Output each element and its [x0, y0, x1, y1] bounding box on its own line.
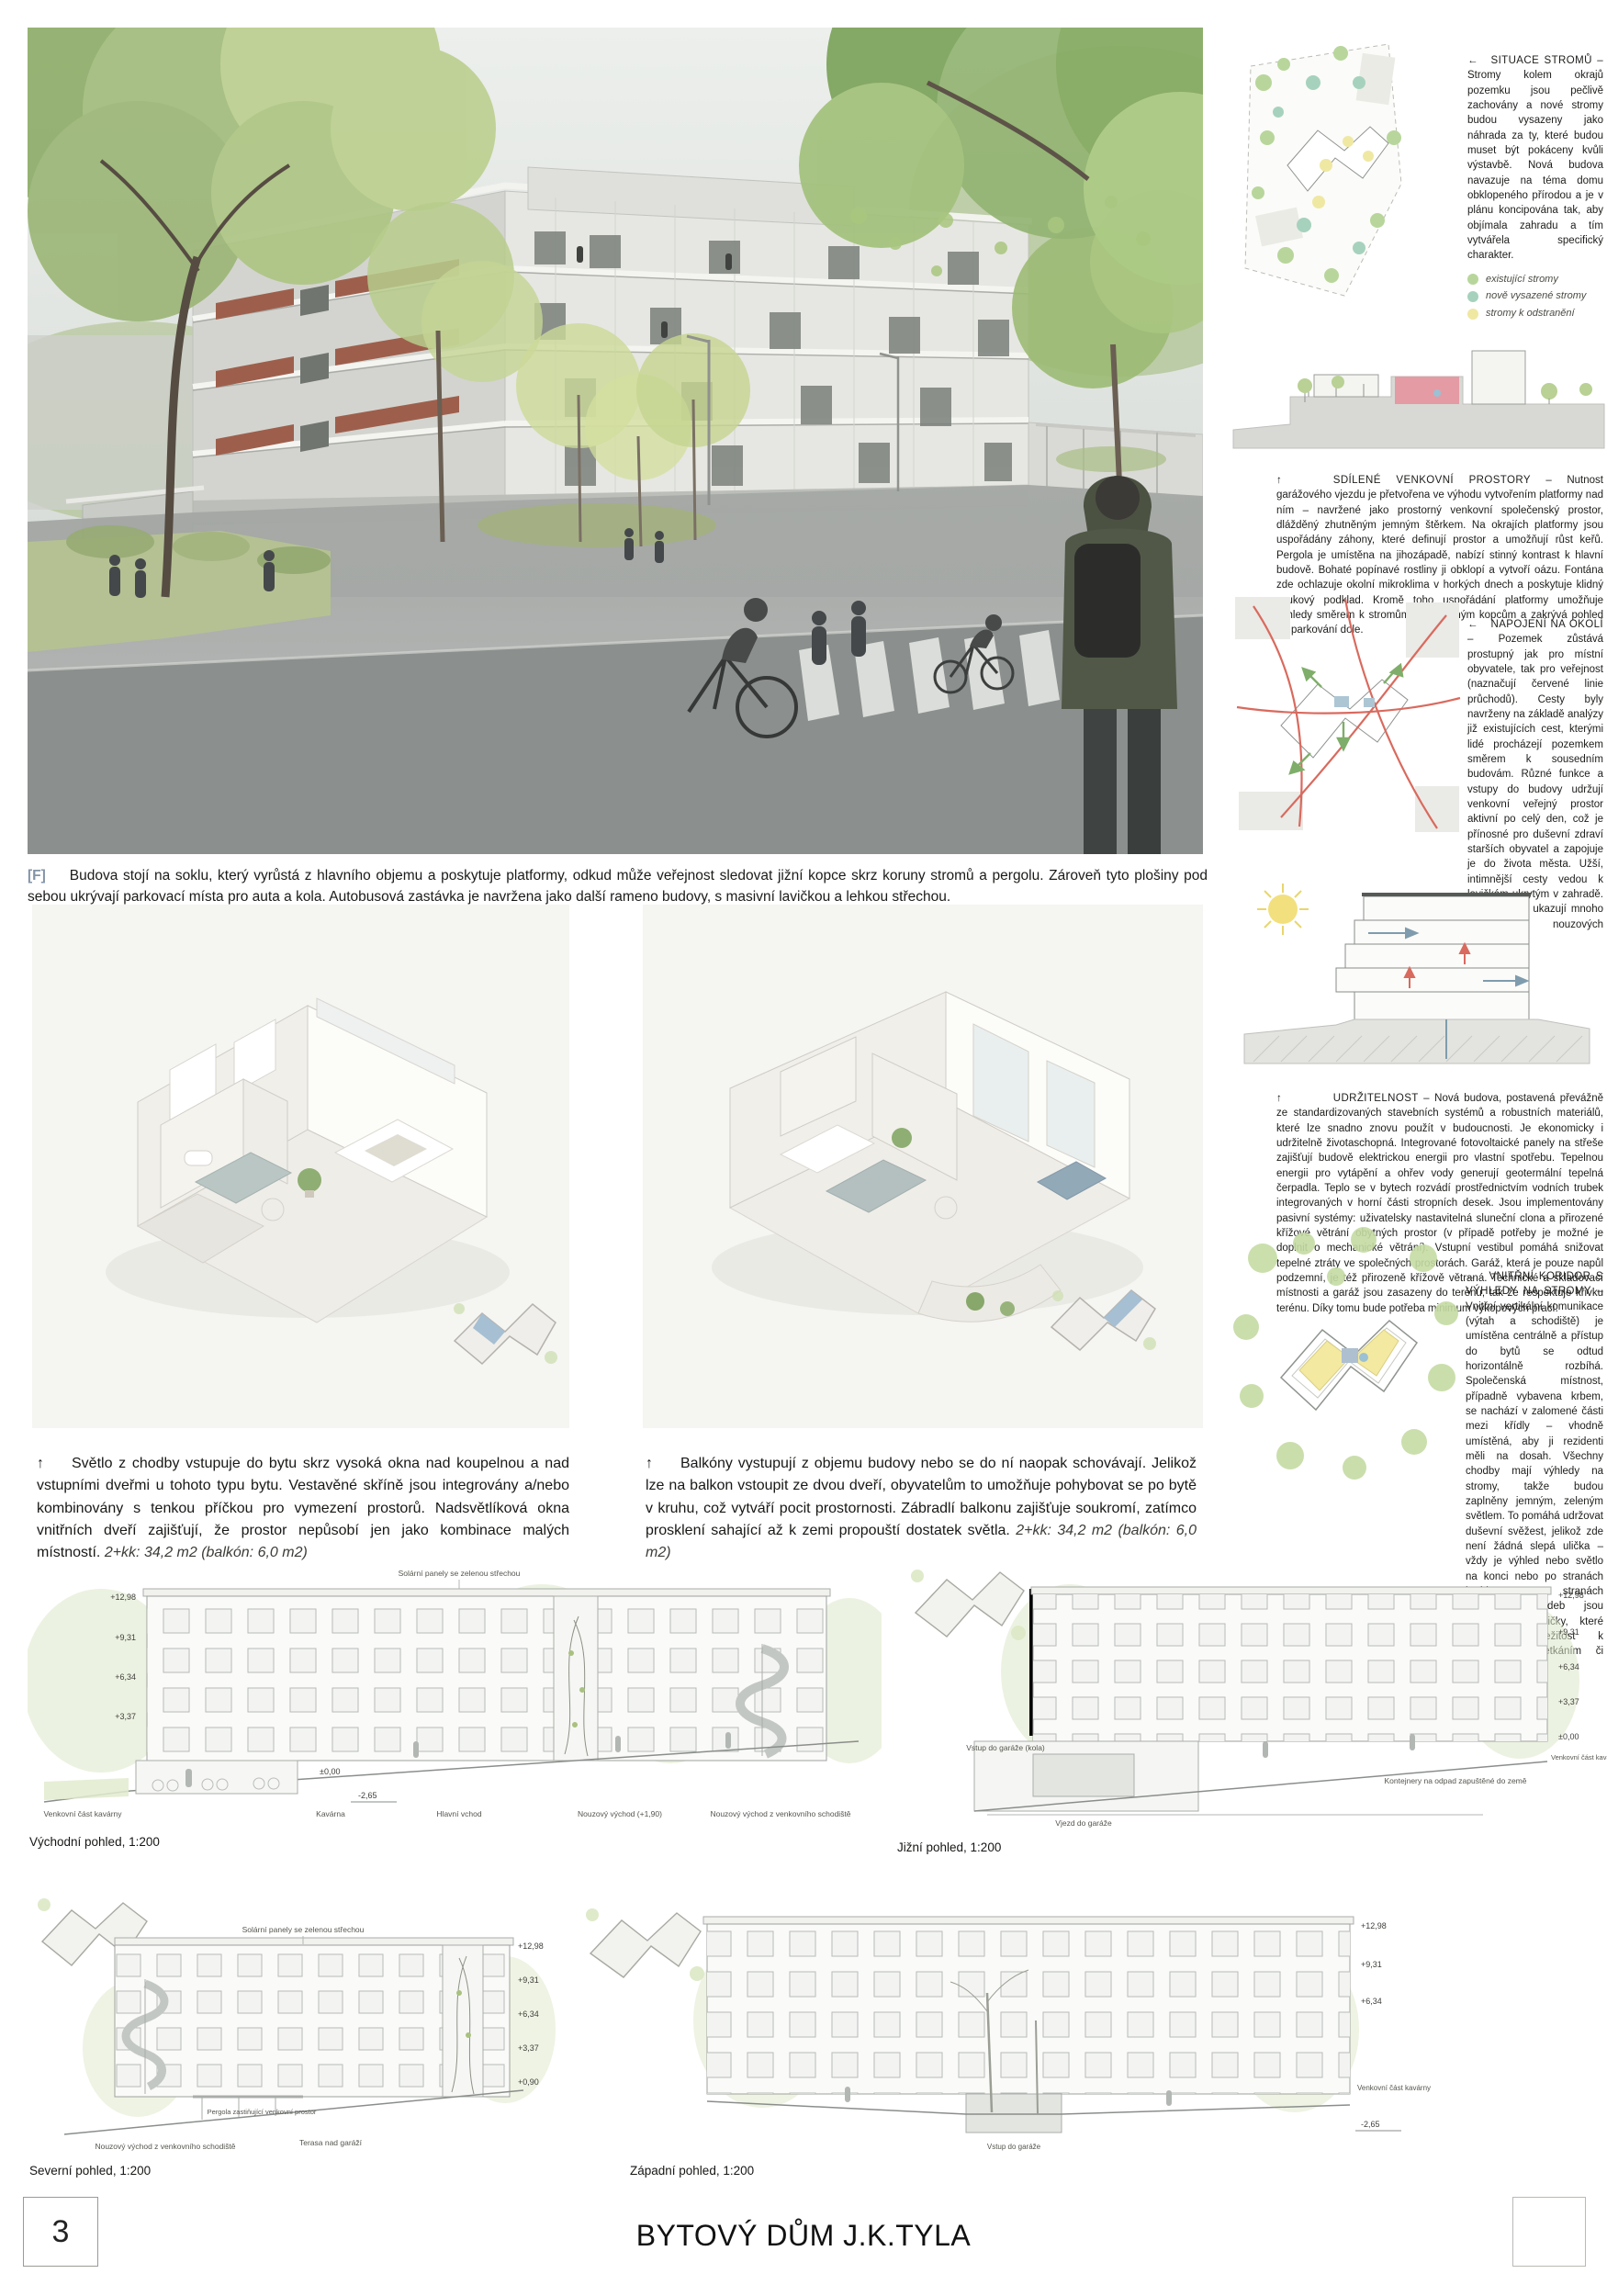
- elevation-south: +12,98 +9,31 +6,34 +3,37 ±0,00 Vstup do …: [895, 1543, 1607, 1837]
- section-body: Stromy kolem okrajů pozemku jsou pečlivě…: [1467, 70, 1603, 261]
- sustainability-section: [1226, 871, 1607, 1073]
- svg-text:Vstup do garáže (kola): Vstup do garáže (kola): [966, 1743, 1045, 1752]
- svg-text:Vstup do garáže: Vstup do garáže: [987, 2143, 1041, 2151]
- elevation-east-label: Východní pohled, 1:200: [29, 1835, 160, 1849]
- facade-windows-left: [300, 285, 329, 452]
- elevation-south-label: Jižní pohled, 1:200: [897, 1840, 1001, 1854]
- interior-axonometry-2: [643, 905, 1203, 1428]
- svg-text:+6,34: +6,34: [518, 2009, 539, 2019]
- svg-text:Hlavní vchod: Hlavní vchod: [436, 1809, 481, 1818]
- svg-text:+9,31: +9,31: [1558, 1627, 1579, 1637]
- interior-render-1: [32, 905, 569, 1428]
- svg-text:Terasa nad garáží: Terasa nad garáží: [299, 2138, 363, 2147]
- svg-text:Nouzový východ z venkovního sc: Nouzový východ z venkovního schodiště: [95, 2142, 235, 2151]
- svg-text:Kontejnery na odpad zapuštěné: Kontejnery na odpad zapuštěné do země: [1384, 1776, 1526, 1785]
- svg-text:Venkovní část kavárny: Venkovní část kavárny: [1357, 2084, 1431, 2092]
- elevation-south-drawing: +12,98 +9,31 +6,34 +3,37 ±0,00 Vstup do …: [895, 1543, 1607, 1837]
- shared-outdoor-section: [1226, 338, 1607, 456]
- svg-text:+6,34: +6,34: [115, 1672, 136, 1682]
- elevation-west: +12,98 +9,31 +6,34 -2,65 Venkovní část k…: [569, 1883, 1488, 2158]
- diagram-sustainability: [1226, 871, 1607, 1073]
- hero-caption: [F]Budova stojí na soklu, který vyrůstá …: [28, 865, 1208, 908]
- bike-shelter: [136, 1761, 298, 1794]
- left-arrow-icon: ←: [1467, 619, 1478, 630]
- svg-text:+9,31: +9,31: [115, 1633, 136, 1642]
- diagram-shared-outdoor: [1226, 338, 1607, 456]
- board-title: BYTOVÝ DŮM J.K.TYLA: [0, 2219, 1607, 2253]
- presentation-board: [F]Budova stojí na soklu, který vyrůstá …: [0, 0, 1607, 2296]
- elevation-west-label: Západní pohled, 1:200: [630, 2164, 754, 2178]
- diagram-tree-situation: [1231, 28, 1423, 308]
- interior-axonometry-1: [32, 905, 569, 1428]
- svg-text:+3,37: +3,37: [115, 1712, 136, 1721]
- up-arrow-icon: ↑: [1276, 1093, 1282, 1104]
- tree-legend: existující stromy nově vysazené stromy s…: [1467, 273, 1603, 321]
- svg-text:+3,37: +3,37: [518, 2043, 539, 2053]
- elevation-east: +12,98 +9,31 +6,34 +3,37 ±0,00 -2,65 Sol…: [28, 1561, 882, 1828]
- garage-entry: [966, 2094, 1062, 2133]
- apartment-caption-1: ↑Světlo z chodby vstupuje do bytu skrz v…: [37, 1453, 569, 1565]
- legend-item: stromy k odstranění: [1467, 307, 1603, 321]
- key-plan: [911, 1570, 1026, 1640]
- building-section: [1336, 896, 1529, 1019]
- main-render-illustration: [28, 28, 1203, 854]
- svg-text:Vjezd do garáže: Vjezd do garáže: [1055, 1818, 1112, 1828]
- vine-panel: [554, 1596, 598, 1761]
- apartment-1-spec: 2+kk: 34,2 m2 (balkón: 6,0 m2): [105, 1545, 308, 1560]
- garage-door: [1033, 1754, 1134, 1796]
- key-plan: [586, 1908, 704, 1981]
- elevation-east-drawing: +12,98 +9,31 +6,34 +3,37 ±0,00 -2,65 Sol…: [28, 1561, 882, 1828]
- hero-caption-text: Budova stojí na soklu, který vyrůstá z h…: [28, 868, 1208, 905]
- svg-text:-2,65: -2,65: [1361, 2120, 1380, 2129]
- svg-text:+9,31: +9,31: [1361, 1960, 1382, 1969]
- main-render: [28, 28, 1203, 854]
- legend-item: existující stromy: [1467, 273, 1603, 287]
- svg-text:+3,37: +3,37: [1558, 1697, 1579, 1706]
- section-title: SITUACE STROMŮ –: [1491, 55, 1604, 66]
- figure-tag: [F]: [28, 868, 46, 884]
- svg-text:+6,34: +6,34: [1361, 1997, 1382, 2006]
- existing-trees-dot: [1467, 274, 1478, 285]
- vine-panel: [443, 1945, 483, 2097]
- new-trees-dot: [1467, 291, 1478, 302]
- footer-right-box: [1512, 2197, 1586, 2267]
- diagram-connections: [1226, 588, 1469, 843]
- elevation-north: +12,98 +9,31 +6,34 +3,37 +0,90 Solární p…: [28, 1874, 556, 2158]
- removed-trees-dot: [1467, 309, 1478, 320]
- svg-text:-2,65: -2,65: [358, 1791, 377, 1800]
- svg-text:+12,98: +12,98: [1558, 1591, 1584, 1600]
- svg-text:±0,00: ±0,00: [1558, 1732, 1579, 1741]
- up-arrow-icon: ↑: [37, 1456, 44, 1471]
- connections-plan: [1226, 588, 1469, 843]
- svg-text:Venkovní část kavárny: Venkovní část kavárny: [43, 1809, 122, 1818]
- svg-text:Nouzový východ (+1,90): Nouzový východ (+1,90): [578, 1809, 662, 1818]
- sidebar-section-tree-situation: ←SITUACE STROMŮ – Stromy kolem okrajů po…: [1467, 53, 1603, 323]
- svg-text:+12,98: +12,98: [110, 1593, 136, 1602]
- svg-text:+9,31: +9,31: [518, 1975, 539, 1985]
- elevation-north-drawing: +12,98 +9,31 +6,34 +3,37 +0,90 Solární p…: [28, 1874, 556, 2158]
- level-marks-low: ±0,00 -2,65: [320, 1767, 397, 1802]
- legend-item: nově vysazené stromy: [1467, 289, 1603, 304]
- svg-text:+6,34: +6,34: [1558, 1662, 1579, 1671]
- svg-text:Kavárna: Kavárna: [316, 1809, 345, 1818]
- corridor-plan: [1226, 1221, 1469, 1490]
- diagram-corridor: [1226, 1221, 1469, 1490]
- svg-text:Nouzový východ z venkovního sc: Nouzový východ z venkovního schodiště: [710, 1809, 850, 1818]
- left-arrow-icon: ←: [1467, 55, 1478, 66]
- terrain: [1244, 1019, 1590, 1064]
- sun-icon: [1257, 884, 1309, 935]
- svg-text:+12,98: +12,98: [1361, 1921, 1387, 1930]
- svg-text:Venkovní část kavárny: Venkovní část kavárny: [1551, 1753, 1607, 1761]
- left-arrow-icon: ←: [1466, 1271, 1477, 1282]
- elevation-north-label: Severní pohled, 1:200: [29, 2164, 151, 2178]
- up-arrow-icon: ↑: [1276, 475, 1282, 486]
- svg-text:+0,90: +0,90: [518, 2077, 539, 2087]
- svg-text:±0,00: ±0,00: [320, 1767, 340, 1776]
- up-arrow-icon: ↑: [646, 1456, 653, 1471]
- section-title: UDRŽITELNOST –: [1333, 1093, 1430, 1104]
- section-title: VNITŘNÍ KORIDOR S VÝHLEDY NA STROMY –: [1466, 1271, 1603, 1297]
- svg-text:Solární panely se zelenou stře: Solární panely se zelenou střechou: [242, 1925, 365, 1934]
- svg-text:Pergola zastiňující venkovní p: Pergola zastiňující venkovní prostor: [208, 2108, 317, 2116]
- elevation-west-drawing: +12,98 +9,31 +6,34 -2,65 Venkovní část k…: [569, 1883, 1488, 2158]
- level-marks: +12,98 +9,31 +6,34 -2,65: [1355, 1921, 1401, 2131]
- section-title: SDÍLENÉ VENKOVNÍ PROSTORY –: [1333, 475, 1552, 486]
- tree-situation-plan: [1231, 28, 1423, 308]
- svg-text:+12,98: +12,98: [518, 1941, 544, 1951]
- svg-text:Solární panely se zelenou stře: Solární panely se zelenou střechou: [399, 1569, 521, 1578]
- interior-render-2: [643, 905, 1203, 1428]
